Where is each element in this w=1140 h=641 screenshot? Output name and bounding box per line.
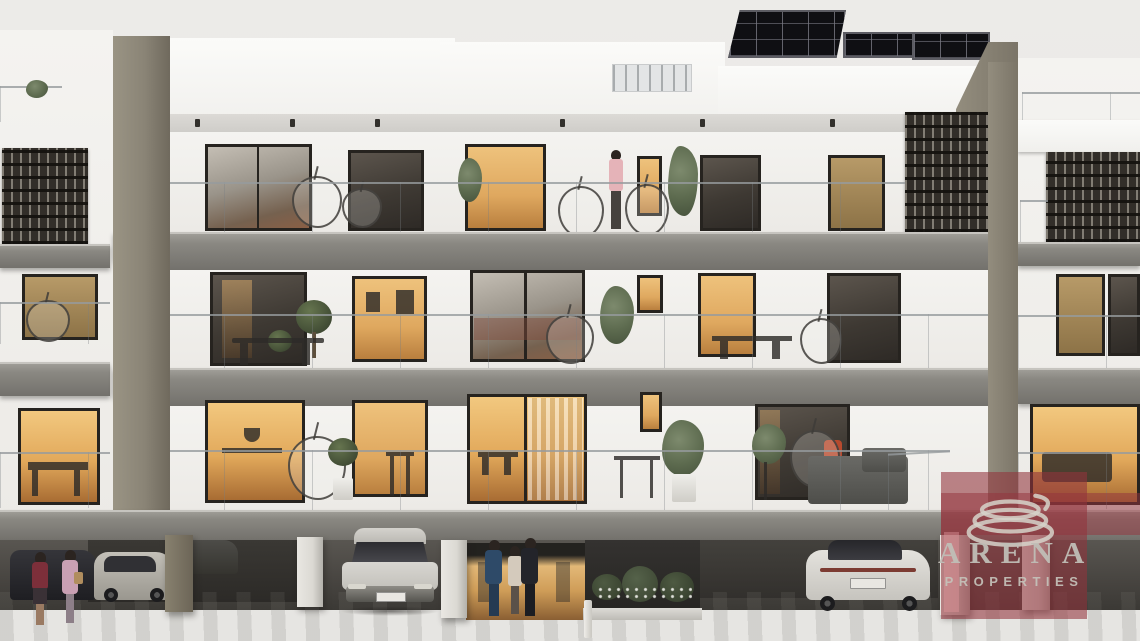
window	[637, 275, 663, 313]
framed-art	[396, 290, 414, 314]
person-legs	[489, 584, 499, 616]
person-legs	[525, 584, 535, 616]
downlight	[375, 119, 380, 127]
balcony-slab	[113, 232, 992, 270]
brand-tagline: PROPERTIES	[944, 574, 1084, 590]
solar-panel-array	[912, 32, 990, 60]
car-headlight	[348, 584, 366, 589]
car-silver-sedan-front	[340, 528, 440, 616]
person-bag	[74, 572, 83, 584]
facade-pillar-right	[988, 62, 1018, 538]
planter-curb	[583, 608, 702, 620]
person-suit	[521, 548, 538, 584]
framed-art	[366, 292, 380, 312]
car-greenhouse	[104, 556, 156, 572]
person-man-blue-suit	[482, 540, 506, 618]
car-roof	[354, 528, 426, 544]
downlight	[290, 119, 295, 127]
glass-balustrade	[136, 450, 950, 512]
white-flowers	[596, 586, 692, 600]
brand-name: ARENA	[938, 536, 1090, 570]
person-legs	[66, 594, 74, 623]
car-shadow	[340, 606, 440, 616]
car-white-sedan-rear	[806, 538, 930, 612]
lattice-screen	[905, 112, 990, 232]
glass-balustrade	[0, 452, 110, 508]
person-man-black-suit	[518, 538, 542, 618]
solar-panel-array	[728, 10, 846, 58]
bollard	[584, 600, 592, 638]
parking-column	[297, 537, 323, 607]
lattice-screen	[2, 148, 88, 244]
license-plate	[850, 578, 886, 589]
glass-balustrade	[136, 314, 988, 371]
architectural-render: ARENA PROPERTIES	[0, 0, 1140, 641]
downlight	[700, 119, 705, 127]
glass-balustrade	[0, 302, 110, 344]
roof-parapet	[1018, 120, 1140, 152]
glass-balustrade	[136, 182, 905, 236]
car-wheel	[150, 588, 164, 602]
car-windshield	[352, 542, 428, 562]
person-woman-red	[28, 552, 52, 625]
car-headlight	[414, 584, 432, 589]
person-woman-pink	[58, 550, 82, 625]
balcony-slab	[1018, 242, 1140, 266]
car-dark-sedan	[10, 550, 96, 600]
person-torso	[32, 562, 48, 590]
lattice-screen	[1046, 152, 1140, 242]
downlight	[830, 119, 835, 127]
person-suit	[485, 550, 502, 584]
car-wheel	[902, 596, 917, 611]
solar-panel-array	[843, 32, 915, 58]
parking-column	[165, 535, 193, 612]
downlight	[560, 119, 565, 127]
parking-column	[441, 540, 467, 618]
person-skirt	[33, 588, 47, 604]
car-wheel	[820, 596, 835, 611]
person-legs	[36, 604, 44, 625]
license-plate	[376, 592, 406, 602]
car-wheel	[104, 588, 118, 602]
car-rear-window	[828, 540, 902, 560]
glass-balustrade	[1018, 315, 1140, 370]
glass-balustrade	[1020, 200, 1048, 244]
rooftop-glass-balustrade	[612, 64, 692, 92]
balcony-slab	[0, 244, 110, 268]
balcony-slab	[0, 362, 110, 396]
balcony-slab	[1018, 368, 1140, 404]
corridor-doorway	[556, 562, 570, 602]
car-taillight-bar	[820, 568, 916, 572]
facade-pillar-left	[113, 36, 170, 538]
downlight	[195, 119, 200, 127]
window	[640, 392, 662, 432]
